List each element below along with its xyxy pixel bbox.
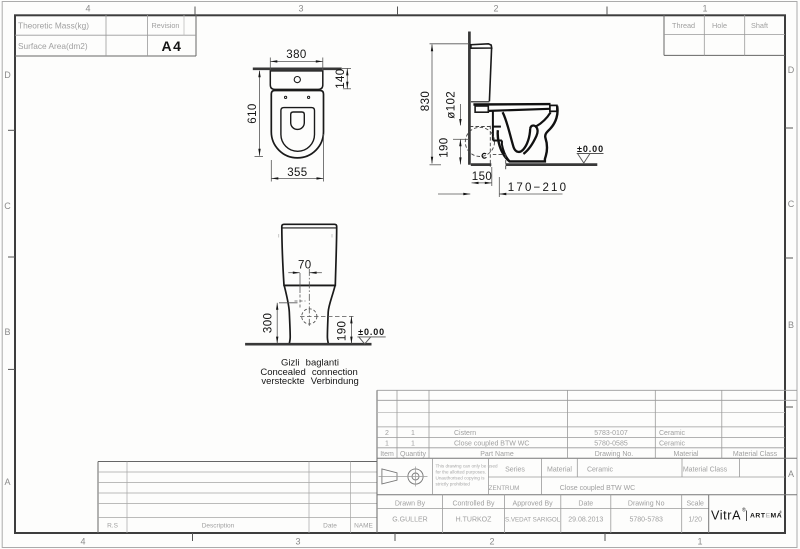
svg-text:A4: A4 bbox=[162, 38, 183, 54]
svg-text:Description: Description bbox=[202, 523, 235, 530]
svg-text:Material: Material bbox=[547, 467, 572, 474]
svg-text:1: 1 bbox=[697, 537, 702, 547]
svg-text:S.VEDAT SARIGOL: S.VEDAT SARIGOL bbox=[505, 517, 561, 524]
svg-text:Material Class: Material Class bbox=[683, 467, 728, 474]
svg-text:R.S: R.S bbox=[107, 523, 119, 530]
svg-text:2: 2 bbox=[489, 537, 494, 547]
svg-text:B: B bbox=[788, 320, 794, 330]
svg-text:ø102: ø102 bbox=[446, 91, 458, 119]
svg-text:B: B bbox=[4, 327, 10, 337]
svg-text:Cistern: Cistern bbox=[454, 430, 476, 437]
svg-text:±0.00: ±0.00 bbox=[577, 144, 604, 154]
svg-text:ARTEMA: ARTEMA bbox=[750, 513, 782, 520]
svg-text:2: 2 bbox=[493, 4, 498, 14]
svg-text:G.GULLER: G.GULLER bbox=[392, 517, 427, 524]
svg-text:VitrA: VitrA bbox=[711, 509, 741, 523]
svg-text:NAME: NAME bbox=[354, 523, 373, 530]
svg-text:Drawn By: Drawn By bbox=[395, 501, 426, 508]
svg-text:355: 355 bbox=[287, 167, 307, 179]
svg-text:190: 190 bbox=[439, 137, 451, 157]
svg-text:170−210: 170−210 bbox=[508, 182, 569, 194]
svg-text:5780-5783: 5780-5783 bbox=[629, 517, 663, 524]
svg-text:70: 70 bbox=[298, 260, 312, 272]
svg-text:1: 1 bbox=[702, 4, 707, 14]
svg-text:1: 1 bbox=[411, 430, 415, 437]
svg-text:5780-0585: 5780-0585 bbox=[594, 441, 628, 448]
svg-text:380: 380 bbox=[286, 49, 306, 61]
svg-text:Ceramic: Ceramic bbox=[587, 467, 614, 474]
svg-text:Drawing No.: Drawing No. bbox=[595, 451, 634, 458]
svg-text:Scale: Scale bbox=[686, 501, 704, 508]
svg-text:Thread: Thread bbox=[672, 21, 695, 30]
svg-text:This drawing can only be used: This drawing can only be used bbox=[436, 464, 498, 469]
svg-text:versteckte Verbindung: versteckte Verbindung bbox=[261, 376, 359, 387]
svg-text:29.08.2013: 29.08.2013 bbox=[568, 517, 603, 524]
svg-text:830: 830 bbox=[420, 91, 432, 111]
svg-text:Item: Item bbox=[380, 451, 394, 458]
svg-text:H.TURKOZ: H.TURKOZ bbox=[456, 517, 493, 524]
svg-text:Date: Date bbox=[578, 501, 593, 508]
svg-text:Ceramic: Ceramic bbox=[659, 430, 686, 437]
svg-text:5783-0107: 5783-0107 bbox=[594, 430, 628, 437]
svg-text:Quantity: Quantity bbox=[400, 451, 427, 458]
svg-text:D: D bbox=[788, 65, 795, 75]
svg-text:Part Name: Part Name bbox=[480, 451, 514, 458]
svg-text:140: 140 bbox=[335, 68, 347, 88]
svg-text:3: 3 bbox=[295, 537, 300, 547]
svg-text:4: 4 bbox=[80, 537, 85, 547]
svg-text:|: | bbox=[745, 510, 748, 522]
svg-text:D: D bbox=[4, 70, 11, 80]
svg-text:Approved By: Approved By bbox=[513, 501, 554, 508]
svg-text:ZENTRUM: ZENTRUM bbox=[489, 485, 520, 492]
svg-text:2: 2 bbox=[385, 430, 389, 437]
svg-text:Series: Series bbox=[505, 467, 525, 474]
svg-text:A: A bbox=[788, 469, 794, 479]
svg-text:1/20: 1/20 bbox=[688, 517, 702, 524]
svg-text:1: 1 bbox=[385, 441, 389, 448]
svg-text:1: 1 bbox=[411, 441, 415, 448]
svg-text:Material: Material bbox=[674, 451, 699, 458]
svg-text:190: 190 bbox=[337, 321, 349, 341]
svg-text:A: A bbox=[4, 477, 10, 487]
svg-text:Surface Area(dm2): Surface Area(dm2) bbox=[18, 41, 88, 51]
svg-text:C: C bbox=[788, 199, 795, 209]
svg-text:Ceramic: Ceramic bbox=[659, 441, 686, 448]
svg-text:Unauthorised copying is: Unauthorised copying is bbox=[436, 476, 486, 481]
svg-text:Date: Date bbox=[323, 523, 337, 530]
svg-text:Material Class: Material Class bbox=[733, 451, 778, 458]
svg-text:4: 4 bbox=[85, 4, 90, 14]
svg-text:Close coupled BTW WC: Close coupled BTW WC bbox=[454, 441, 529, 448]
svg-text:Shaft: Shaft bbox=[751, 21, 768, 30]
svg-text:150: 150 bbox=[472, 171, 492, 183]
svg-text:Drawing No: Drawing No bbox=[628, 501, 665, 508]
svg-text:±0.00: ±0.00 bbox=[358, 327, 385, 337]
svg-text:C: C bbox=[4, 201, 11, 211]
svg-text:Hole: Hole bbox=[712, 21, 727, 30]
svg-text:®: ® bbox=[779, 511, 782, 515]
svg-text:Controlled By: Controlled By bbox=[452, 501, 495, 508]
svg-text:Revision: Revision bbox=[152, 21, 180, 30]
svg-text:610: 610 bbox=[247, 103, 259, 123]
svg-text:strictly prohibited: strictly prohibited bbox=[436, 482, 471, 487]
svg-text:300: 300 bbox=[262, 313, 274, 333]
svg-text:Theoretic Mass(kg): Theoretic Mass(kg) bbox=[18, 21, 89, 31]
svg-text:for the allotted purposes.: for the allotted purposes. bbox=[436, 470, 487, 475]
svg-text:3: 3 bbox=[298, 4, 303, 14]
svg-text:Close coupled BTW WC: Close coupled BTW WC bbox=[560, 485, 635, 492]
